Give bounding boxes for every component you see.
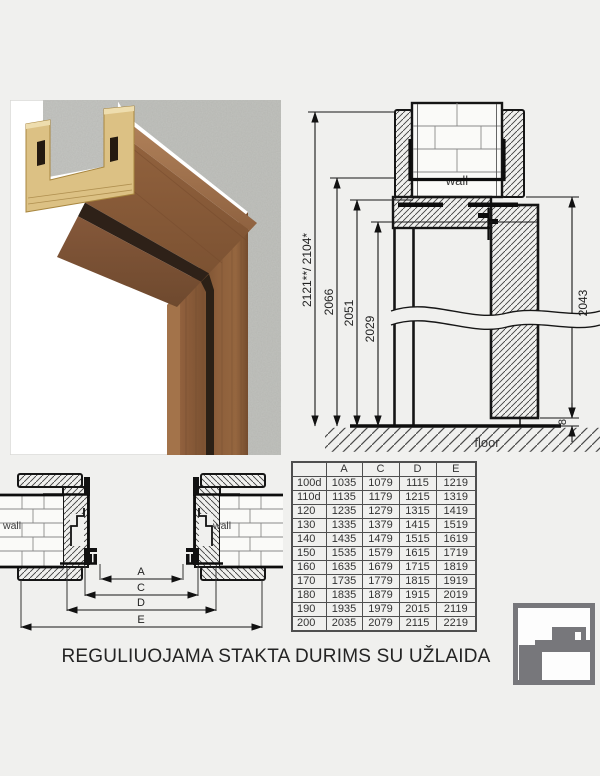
table-cell: 1435: [326, 533, 362, 547]
table-cell: 2035: [326, 617, 362, 632]
table-row: 1901935197920152119: [292, 603, 476, 617]
table-row: 1601635167917151819: [292, 561, 476, 575]
table-cell: 2115: [399, 617, 436, 632]
table-cell: 1535: [326, 547, 362, 561]
dim-2066-label: 2066: [322, 288, 336, 315]
table-row-label: 110d: [292, 491, 326, 505]
table-row-label: 170: [292, 575, 326, 589]
table-cell: 2015: [399, 603, 436, 617]
table-header-cell: A: [326, 462, 362, 477]
section-wall: wall: [412, 103, 502, 197]
table-header-cell: D: [399, 462, 436, 477]
plan-left-jamb: [0, 474, 100, 628]
table-cell: 1479: [362, 533, 399, 547]
table-header-cell: [292, 462, 326, 477]
floor: floor: [325, 426, 600, 452]
section-drawing: wall floor: [295, 5, 600, 458]
table-cell: 1135: [326, 491, 362, 505]
table-cell: 1515: [399, 533, 436, 547]
table-cell: 2079: [362, 617, 399, 632]
dim-2043-label: 2043: [576, 289, 590, 316]
table-cell: 1115: [399, 477, 436, 491]
table-row-label: 100d: [292, 477, 326, 491]
plan-dimension-labels: A C D E: [137, 566, 145, 626]
table-cell: 1735: [326, 575, 362, 589]
table-cell: 1819: [436, 561, 476, 575]
table-cell: 1619: [436, 533, 476, 547]
table-cell: 2119: [436, 603, 476, 617]
table-row: 1501535157916151719: [292, 547, 476, 561]
table-cell: 1979: [362, 603, 399, 617]
table-cell: 1415: [399, 519, 436, 533]
plan-drawing: wall wall A C D E: [0, 458, 292, 648]
dim-a-label: A: [137, 566, 145, 578]
table-cell: 1279: [362, 505, 399, 519]
spec-table: ACDE100d1035107911151219110d113511791215…: [291, 461, 477, 632]
table-cell: 1219: [436, 477, 476, 491]
dim-2029-label: 2029: [363, 315, 377, 342]
table-cell: 1579: [362, 547, 399, 561]
frame-slot: [110, 137, 118, 163]
dim-e-label: E: [137, 614, 144, 626]
table-cell: 1335: [326, 519, 362, 533]
dim-d-label: D: [137, 597, 145, 609]
brand-logo: [513, 603, 595, 685]
page-title: REGULIUOJAMA STAKTA DURIMS SU UŽLAIDA: [0, 646, 552, 668]
plan-right-jamb: [183, 474, 283, 628]
table-cell: 1379: [362, 519, 399, 533]
dim-2051-label: 2051: [342, 299, 356, 326]
table-header-row: ACDE: [292, 462, 476, 477]
table-cell: 1419: [436, 505, 476, 519]
table-cell: 1519: [436, 519, 476, 533]
table-row: 2002035207921152219: [292, 617, 476, 632]
table-row: 1801835187919152019: [292, 589, 476, 603]
table-row: 100d1035107911151219: [292, 477, 476, 491]
table-cell: 1715: [399, 561, 436, 575]
table-row-label: 160: [292, 561, 326, 575]
table-cell: 1915: [399, 589, 436, 603]
table-row-label: 180: [292, 589, 326, 603]
table-cell: 1079: [362, 477, 399, 491]
wall-label-left: wall: [2, 520, 21, 532]
table-cell: 1679: [362, 561, 399, 575]
table-cell: 2219: [436, 617, 476, 632]
table-cell: 1635: [326, 561, 362, 575]
table-cell: 1935: [326, 603, 362, 617]
table-cell: 1035: [326, 477, 362, 491]
floor-label: floor: [474, 435, 500, 450]
frame-slot: [37, 140, 45, 166]
table-cell: 1719: [436, 547, 476, 561]
table-row: 1301335137914151519: [292, 519, 476, 533]
frame-corner-photo: [10, 100, 281, 455]
jamb-edges: [395, 228, 414, 426]
dim-total-label: 2121**/ 2104*: [300, 233, 314, 307]
section-dimension-labels: 2121**/ 2104* 2066 2051 2029 2043 8: [300, 233, 590, 425]
frame-head-profile: [393, 197, 491, 228]
table-cell: 1779: [362, 575, 399, 589]
table-cell: 1815: [399, 575, 436, 589]
table-cell: 1879: [362, 589, 399, 603]
logo-block-icon: [519, 645, 542, 680]
table-cell: 1315: [399, 505, 436, 519]
table-row-label: 120: [292, 505, 326, 519]
table-cell: 1235: [326, 505, 362, 519]
table-row: 110d1135117912151319: [292, 491, 476, 505]
table-header-cell: E: [436, 462, 476, 477]
table-row-label: 150: [292, 547, 326, 561]
table-row: 1401435147915151619: [292, 533, 476, 547]
table-cell: 1835: [326, 589, 362, 603]
table-row-label: 140: [292, 533, 326, 547]
table-header-cell: C: [362, 462, 399, 477]
table-row-label: 190: [292, 603, 326, 617]
table-cell: 1319: [436, 491, 476, 505]
table-row-label: 130: [292, 519, 326, 533]
table-cell: 2019: [436, 589, 476, 603]
table-cell: 1179: [362, 491, 399, 505]
table-row: 1701735177918151919: [292, 575, 476, 589]
table-cell: 1919: [436, 575, 476, 589]
table-row: 1201235127913151419: [292, 505, 476, 519]
table-cell: 1615: [399, 547, 436, 561]
wall-label-right: wall: [212, 520, 231, 532]
dim-8-label: 8: [557, 419, 569, 425]
table-cell: 1215: [399, 491, 436, 505]
dim-c-label: C: [137, 582, 145, 594]
table-row-label: 200: [292, 617, 326, 632]
